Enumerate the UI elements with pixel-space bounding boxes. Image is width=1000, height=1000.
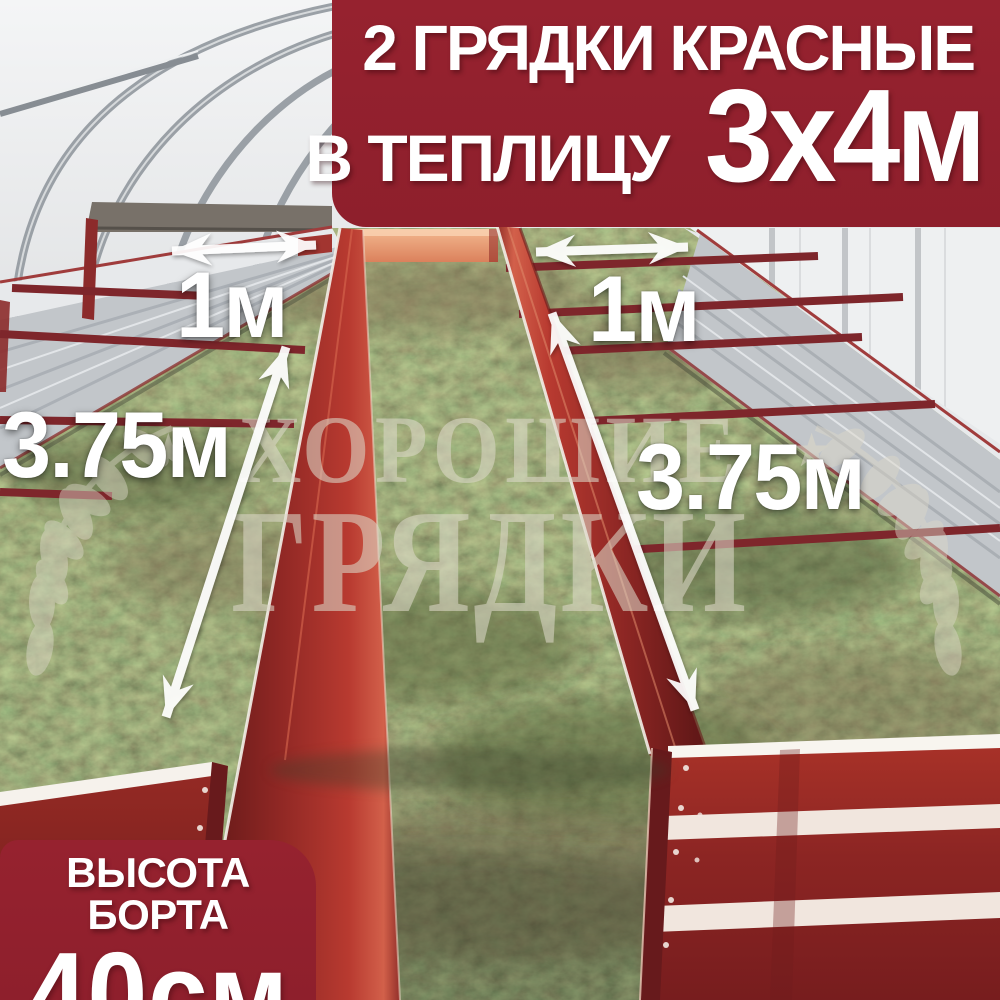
label-bed-width-right: 1м [588,262,699,356]
height-banner: ВЫСОТА БОРТА 40см [0,840,316,1000]
label-bed-width-left: 1м [176,258,287,352]
product-photo-card: ★ ХОРОШИЕ ★ ГРЯДКИ 1м 1м 3.75м 3.75м [0,0,1000,1000]
height-banner-value: 40см [27,938,289,1000]
label-bed-length-left: 3.75м [2,398,230,492]
bed-end-panel [344,229,498,262]
label-bed-length-right: 3.75м [636,430,864,524]
banner-line2: В ТЕПЛИЦУ 3х4м [305,70,982,202]
banner-line2-prefix: В ТЕПЛИЦУ [305,120,668,196]
banner-size-value: 3х4м [705,70,982,202]
title-banner: 2 ГРЯДКИ КРАСНЫЕ В ТЕПЛИЦУ 3х4м [332,0,1000,227]
height-banner-title: ВЫСОТА БОРТА [0,852,316,936]
